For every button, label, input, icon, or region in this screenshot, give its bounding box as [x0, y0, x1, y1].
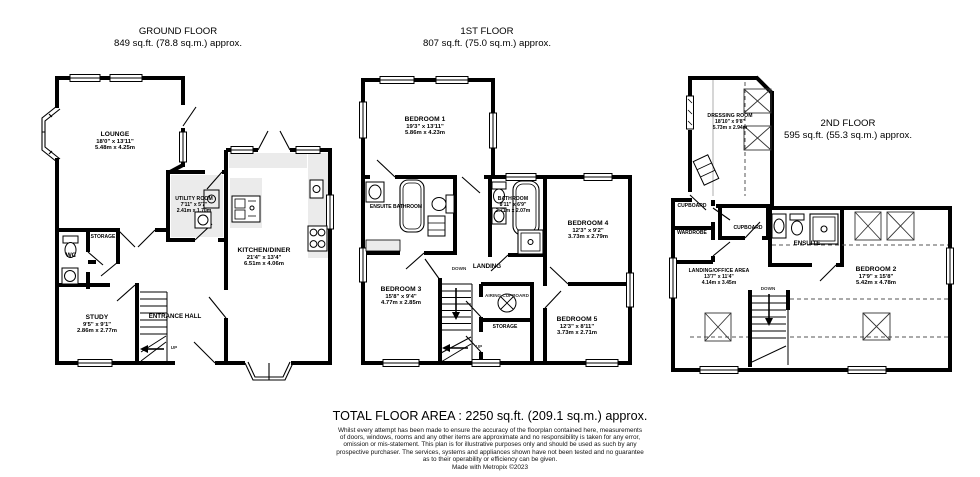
- room-label-dressing-room: DRESSING ROOM 18'10" x 9'8" 5.73m x 2.94…: [707, 114, 752, 132]
- room-label-bathroom: BATHROOM 8'11" x 6'9" 2.71m x 2.07m: [496, 197, 531, 215]
- room-label-bedroom1: BEDROOM 1 19'3" x 13'11" 5.86m x 4.23m: [405, 116, 446, 137]
- second-floor-title: 2ND FLOOR 595 sq.ft. (55.3 sq.m.) approx…: [784, 118, 912, 143]
- ensuite2-toilet-icon: [790, 214, 804, 235]
- disclaimer-line-1: Whilst every attempt has been made to en…: [0, 427, 980, 434]
- disclaimer-line-5: as to their operability or efficiency ca…: [0, 456, 980, 463]
- room-label-wc: WC: [66, 252, 76, 259]
- ensuite2-sink-icon: [772, 214, 786, 238]
- room-label-ensuite-second: ENSUITE: [794, 240, 821, 247]
- floorplan-drawing: [0, 0, 980, 477]
- boiler-icon: [310, 180, 323, 198]
- ground-floor-stairs: [140, 292, 167, 363]
- disclaimer-line-3: omission or mis-statement. This plan is …: [0, 441, 980, 448]
- disclaimer-line-4: prospective purchaser. The services, sys…: [0, 449, 980, 456]
- room-label-bedroom3: BEDROOM 3 15'8" x 9'4" 4.77m x 2.85m: [381, 286, 422, 307]
- metropix-credit: Made with Metropix ©2023: [0, 464, 980, 471]
- room-label-wardrobe: WARDROBE: [677, 231, 707, 237]
- room-label-cupboard2: CUPBOARD: [734, 226, 763, 232]
- room-label-entrance-hall: ENTRANCE HALL: [149, 313, 202, 320]
- hob-icon: [308, 226, 327, 251]
- second-floor-area-text: 595 sq.ft. (55.3 sq.m.) approx.: [784, 130, 912, 142]
- loft-access-icon: [693, 155, 718, 185]
- porch-window: [245, 362, 293, 380]
- ground-floor-title-text: GROUND FLOOR: [114, 26, 242, 38]
- room-label-bedroom4: BEDROOM 4 12'3" x 9'2" 3.73m x 2.79m: [568, 220, 609, 241]
- room-label-ensuite-bathroom: ENSUITE BATHROOM: [370, 205, 422, 211]
- room-label-landing-office: LANDING/OFFICE AREA 13'7" x 11'4" 4.14m …: [689, 269, 750, 287]
- room-label-airing-cupboard: AIRING CUPBOARD: [485, 293, 529, 298]
- second-floor-title-text: 2ND FLOOR: [784, 118, 912, 130]
- room-label-utility: UTILITY ROOM 7'11" x 5'7" 2.41m x 1.70m: [175, 197, 213, 215]
- room-label-storage-ground: STORAGE: [91, 235, 116, 241]
- ensuite-toilet-icon: [432, 195, 454, 213]
- room-label-bedroom2: BEDROOM 2 17'9" x 15'8" 5.42m x 4.78m: [856, 266, 897, 287]
- bay-window: [42, 106, 60, 162]
- second-floor-stairs: [752, 294, 788, 365]
- first-floor-area-text: 807 sq.ft. (75.0 sq.m.) approx.: [423, 38, 551, 50]
- ground-floor-title: GROUND FLOOR 849 sq.ft. (78.8 sq.m.) app…: [114, 26, 242, 51]
- stairs-down-label-second: DOWN: [761, 286, 776, 291]
- ensuite-shelf-icon: [428, 216, 445, 236]
- first-floor-stairs: [440, 284, 472, 363]
- first-floor-title: 1ST FLOOR 807 sq.ft. (75.0 sq.m.) approx…: [423, 26, 551, 51]
- room-label-lounge: LOUNGE 18'0" x 13'11" 5.48m x 4.25m: [95, 131, 135, 152]
- ensuite-sink-icon: [366, 182, 384, 202]
- wc-sink-icon: [62, 268, 78, 284]
- room-label-study: STUDY 9'5" x 9'1" 2.86m x 2.77m: [77, 314, 117, 335]
- first-floor-title-text: 1ST FLOOR: [423, 26, 551, 38]
- total-floor-area: TOTAL FLOOR AREA : 2250 sq.ft. (209.1 sq…: [0, 409, 980, 423]
- room-label-cupboard1: CUPBOARD: [678, 204, 707, 210]
- room-label-storage-first: STORAGE: [493, 325, 518, 331]
- stairs-down-label-first: DOWN: [452, 266, 467, 271]
- room-label-bedroom5: BEDROOM 5 12'3" x 8'11" 3.73m x 2.71m: [557, 316, 598, 337]
- floorplan-canvas: GROUND FLOOR 849 sq.ft. (78.8 sq.m.) app…: [0, 0, 980, 477]
- stairs-up-label-ground: UP: [171, 345, 177, 350]
- room-label-kitchen-diner: KITCHEN/DINER 21'4" x 13'4" 6.51m x 4.06…: [238, 247, 291, 268]
- bathroom-shower-icon: [518, 230, 543, 254]
- ground-floor-area-text: 849 sq.ft. (78.8 sq.m.) approx.: [114, 38, 242, 50]
- disclaimer-line-2: of doors, windows, rooms and any other i…: [0, 434, 980, 441]
- room-label-landing: LANDING: [473, 263, 501, 270]
- kitchen-sink-icon: [232, 196, 260, 222]
- stairs-up-label-first: UP: [476, 344, 482, 349]
- ensuite-vanity: [366, 240, 400, 251]
